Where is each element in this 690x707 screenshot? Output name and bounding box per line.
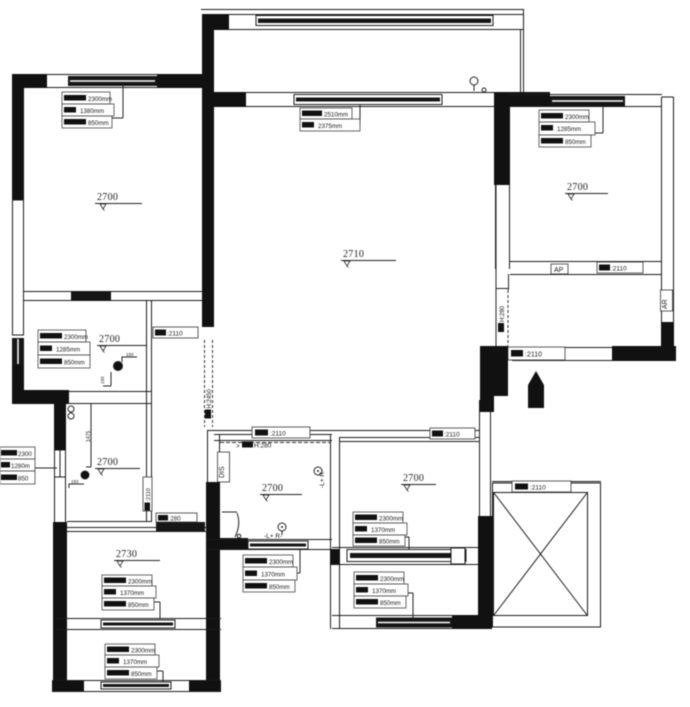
svg-text:850: 850 <box>18 476 29 483</box>
svg-text:2710: 2710 <box>343 249 364 260</box>
svg-text:H:280: H:280 <box>500 305 506 322</box>
svg-text::280: :280 <box>169 517 181 523</box>
svg-text:2700: 2700 <box>262 483 283 494</box>
svg-text::2110: :2110 <box>444 432 460 439</box>
svg-text:2375mm: 2375mm <box>318 123 342 130</box>
svg-text:H:280: H:280 <box>254 443 272 450</box>
svg-text:2700: 2700 <box>567 182 588 193</box>
svg-text:DIS: DIS <box>219 466 226 478</box>
svg-text:1370mm: 1370mm <box>372 588 396 595</box>
svg-text:2700: 2700 <box>403 473 424 484</box>
svg-text:850mm: 850mm <box>64 360 85 367</box>
svg-text::2110: :2110 <box>146 488 152 501</box>
svg-text:1370mm: 1370mm <box>123 659 147 666</box>
svg-text:2300mm: 2300mm <box>380 576 404 583</box>
svg-text:150: 150 <box>100 376 105 384</box>
svg-text:AR: AR <box>662 299 669 309</box>
svg-text:1370mm: 1370mm <box>120 590 144 597</box>
svg-text:2300mm: 2300mm <box>64 334 88 341</box>
svg-text:850mm: 850mm <box>131 671 152 678</box>
svg-text::2110: :2110 <box>530 485 546 492</box>
svg-text:-L+ R-: -L+ R- <box>319 470 326 488</box>
svg-text:1370mm: 1370mm <box>371 527 395 534</box>
svg-text:1280m: 1280m <box>11 463 30 470</box>
svg-text:1370mm: 1370mm <box>261 572 285 579</box>
svg-text::2110: :2110 <box>611 266 627 273</box>
svg-text:850mm: 850mm <box>269 584 290 591</box>
svg-text:2700: 2700 <box>97 457 118 468</box>
svg-text:150: 150 <box>126 352 134 357</box>
svg-text:H:2450: H:2450 <box>207 388 213 408</box>
svg-text:1380mm: 1380mm <box>80 108 104 115</box>
svg-text:2700: 2700 <box>99 334 120 345</box>
svg-text:2300mm: 2300mm <box>269 559 293 566</box>
svg-text:2700: 2700 <box>97 192 118 203</box>
svg-text:2300mm: 2300mm <box>379 516 403 523</box>
svg-text:1285mm: 1285mm <box>557 126 581 133</box>
svg-text::2110: :2110 <box>167 331 183 338</box>
svg-text:850mm: 850mm <box>379 539 400 546</box>
svg-text:150: 150 <box>71 479 79 484</box>
svg-text:2300mm: 2300mm <box>565 114 589 121</box>
svg-text:850mm: 850mm <box>565 139 586 146</box>
svg-text:>: > <box>236 443 240 450</box>
svg-text:AP: AP <box>554 267 564 274</box>
svg-text:850mm: 850mm <box>380 600 401 607</box>
svg-text:2300mm: 2300mm <box>88 96 112 103</box>
svg-text:-L+ R-: -L+ R- <box>264 533 282 540</box>
svg-text:2300mm: 2300mm <box>128 579 152 586</box>
svg-text:2300mm: 2300mm <box>131 648 155 655</box>
svg-text:2730: 2730 <box>116 549 137 560</box>
svg-text:850mm: 850mm <box>88 120 109 127</box>
svg-text:1475: 1475 <box>86 431 92 442</box>
svg-text::2110: :2110 <box>525 352 542 359</box>
svg-text:850mm: 850mm <box>128 602 149 609</box>
svg-text:1285mm: 1285mm <box>56 347 80 354</box>
svg-text:2510mm: 2510mm <box>324 112 348 119</box>
svg-text::2110: :2110 <box>270 431 286 438</box>
svg-text:2300: 2300 <box>18 451 32 458</box>
